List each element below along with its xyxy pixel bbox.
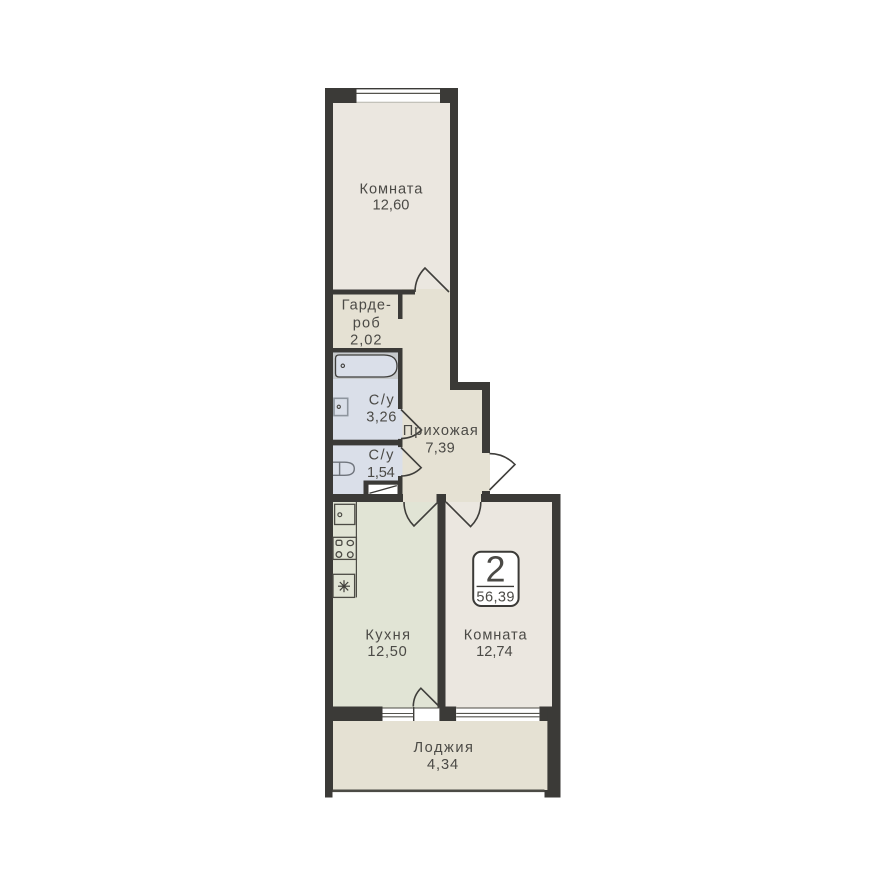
svg-text:Комната: Комната [464,627,528,643]
svg-text:С/у: С/у [369,447,395,463]
svg-text:Гарде-: Гарде- [342,298,392,314]
svg-text:роб: роб [353,316,381,332]
svg-text:Прихожая: Прихожая [403,423,479,439]
svg-text:7,39: 7,39 [425,440,455,456]
svg-text:С/у: С/у [369,392,395,408]
svg-text:12,50: 12,50 [367,644,407,660]
svg-text:56,39: 56,39 [476,589,515,605]
svg-text:12,74: 12,74 [476,644,513,660]
svg-text:4,34: 4,34 [427,757,459,773]
svg-text:12,60: 12,60 [372,197,409,213]
svg-text:Комната: Комната [360,181,424,197]
svg-text:1,54: 1,54 [367,465,395,481]
svg-text:2,02: 2,02 [350,333,382,349]
svg-text:Лоджия: Лоджия [414,740,475,756]
svg-text:2: 2 [485,549,505,590]
svg-text:Кухня: Кухня [365,627,411,643]
svg-text:3,26: 3,26 [366,410,397,426]
